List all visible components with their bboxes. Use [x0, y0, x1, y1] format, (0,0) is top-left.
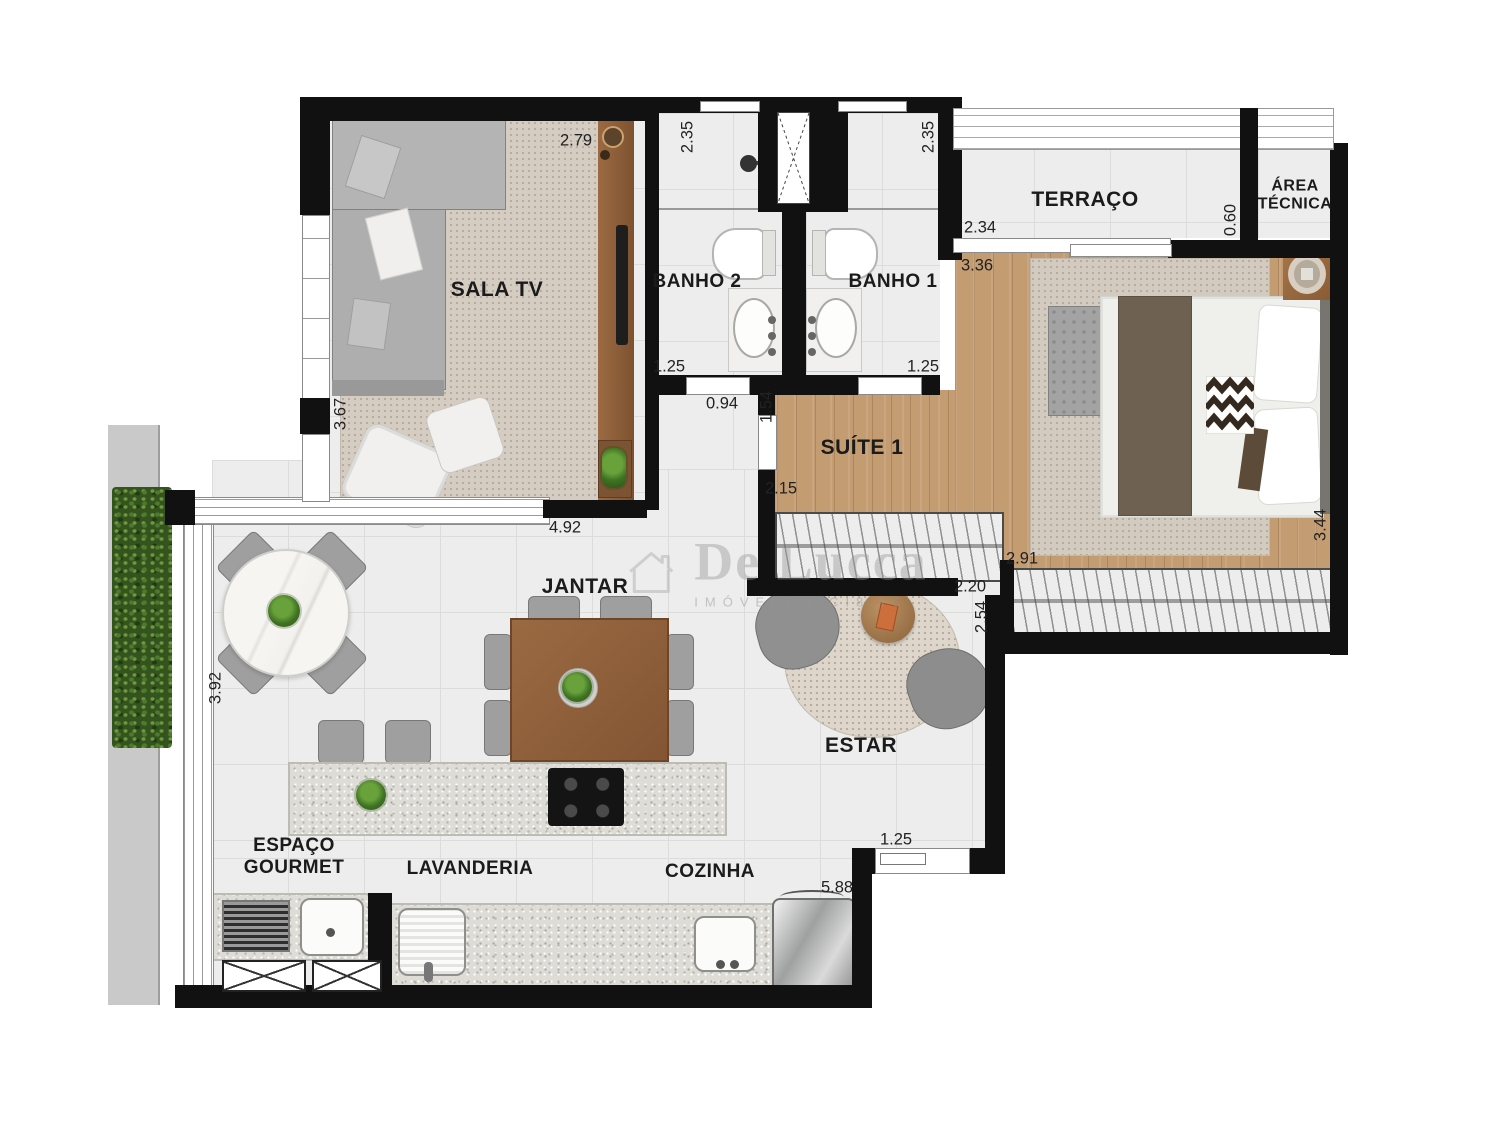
cooktop — [548, 768, 624, 826]
fridge — [772, 898, 856, 992]
room-label-espaco-gourmet: ESPAÇO GOURMET — [224, 835, 364, 879]
wardrobe-suite-2 — [1012, 568, 1334, 636]
banho1-toilet-tank — [812, 230, 826, 276]
dim-suite-top-width: 3.36 — [961, 257, 993, 276]
island-counter — [288, 762, 727, 836]
gourmet-window-top — [178, 497, 550, 525]
gourmet-table-plant — [268, 595, 300, 627]
planter-flowers — [602, 448, 626, 488]
dim-banho1-height: 2.35 — [920, 121, 939, 153]
console-decor — [604, 128, 622, 146]
room-label-cozinha: COZINHA — [665, 861, 755, 883]
room-label-banho2: BANHO 2 — [652, 271, 741, 293]
dim-area-tecnica-depth: 0.60 — [1222, 204, 1241, 236]
wall — [300, 97, 330, 215]
dim-gourmet-depth: 3.92 — [207, 672, 226, 704]
shaft-xbox — [777, 112, 810, 204]
dim-suite-width: 2.91 — [1006, 550, 1038, 569]
room-label-suite1: SUÍTE 1 — [821, 436, 904, 460]
dining-plant-leaves — [562, 672, 592, 702]
entry-jamb — [852, 848, 875, 874]
bed-pillow — [1253, 304, 1324, 404]
entry-door-leaf — [880, 853, 926, 865]
banho2-basin — [733, 298, 775, 358]
dim-banho2-height: 2.35 — [679, 121, 698, 153]
sofa-armrest — [332, 380, 444, 396]
suite-pouf-center — [1301, 268, 1313, 280]
banho2-door — [686, 377, 750, 395]
banho1-door — [858, 377, 922, 395]
sala-window — [302, 215, 330, 400]
dim-sala-opening: 4.92 — [549, 519, 581, 538]
dim-sala-height: 3.67 — [332, 398, 351, 430]
gourmet-faucet-icon — [326, 928, 335, 937]
wardrobe-suite — [775, 512, 1004, 582]
island-stool — [385, 720, 431, 764]
bed-runner — [1118, 296, 1192, 516]
dim-suite-depth: 3.44 — [1312, 509, 1331, 541]
dim-estar-opening: 2.20 — [954, 578, 986, 597]
banho2-faucet-icon — [768, 316, 776, 324]
kitchen-sink — [694, 916, 756, 972]
gourmet-sink — [300, 898, 364, 956]
banho2-window — [700, 101, 760, 112]
bed-headboard — [1320, 300, 1330, 514]
dining-chair — [666, 634, 694, 690]
console-decor — [600, 150, 610, 160]
dim-banho1-width: 1.25 — [907, 358, 939, 377]
room-label-sala-tv: SALA TV — [451, 278, 544, 302]
laundry-faucet-icon — [424, 962, 433, 982]
chevron-pillow — [1206, 376, 1254, 434]
dining-chair — [666, 700, 694, 756]
dim-terraco-width: 2.34 — [964, 219, 996, 238]
vent-xbox — [222, 960, 306, 992]
dim-entry-width: 1.25 — [880, 831, 912, 850]
tv — [616, 225, 628, 345]
dim-cozinha-width: 5.88 — [821, 879, 853, 898]
room-label-terraco: TERRAÇO — [1031, 188, 1138, 212]
room-label-lavanderia: LAVANDERIA — [407, 858, 534, 880]
dim-banho2-width: 1.25 — [653, 358, 685, 377]
dining-chair — [484, 700, 512, 756]
wall — [300, 97, 658, 121]
wall — [165, 490, 195, 525]
wall — [1003, 632, 1348, 654]
kitchen-faucet-icon — [716, 960, 725, 969]
wall — [300, 398, 330, 434]
wall — [645, 97, 659, 510]
dining-chair — [484, 634, 512, 690]
floor-plan: SALA TV BANHO 2 BANHO 1 TERRAÇO ÁREA TÉC… — [0, 0, 1500, 1135]
room-label-estar: ESTAR — [825, 734, 897, 758]
wall — [1168, 240, 1348, 258]
room-label-jantar: JANTAR — [542, 575, 629, 599]
wall — [747, 578, 958, 596]
dim-estar-depth: 2.54 — [973, 601, 992, 633]
terraco-window-2 — [1070, 244, 1172, 257]
hedge — [112, 487, 172, 748]
terraco-railing — [953, 108, 1334, 150]
sofa-pillow — [347, 298, 391, 351]
room-label-banho1: BANHO 1 — [848, 271, 937, 293]
wall — [543, 500, 647, 518]
island-plant — [356, 780, 386, 810]
entry-jamb — [968, 848, 1005, 874]
island-stool — [318, 720, 364, 764]
sala-window-2 — [302, 434, 330, 502]
dim-hall-depth: 1.54 — [758, 391, 777, 423]
wall — [782, 210, 806, 395]
wall — [1330, 143, 1348, 655]
room-label-area-tecnica: ÁREA TÉCNICA — [1250, 178, 1340, 215]
bed-bench — [1048, 306, 1102, 416]
grill — [222, 900, 290, 952]
dim-sala-width: 2.79 — [560, 132, 592, 151]
banho2-toilet-tank — [762, 230, 776, 276]
banho2-shower-head-icon — [740, 155, 757, 172]
vent-xbox — [312, 960, 382, 992]
gourmet-window-left — [183, 497, 214, 989]
dim-suite-door: 2.15 — [765, 480, 797, 499]
dim-hall-width: 0.94 — [706, 395, 738, 414]
suite-door — [758, 415, 777, 470]
banho1-basin — [815, 298, 857, 358]
banho1-window — [838, 101, 907, 112]
banho1-faucet-icon — [808, 316, 816, 324]
